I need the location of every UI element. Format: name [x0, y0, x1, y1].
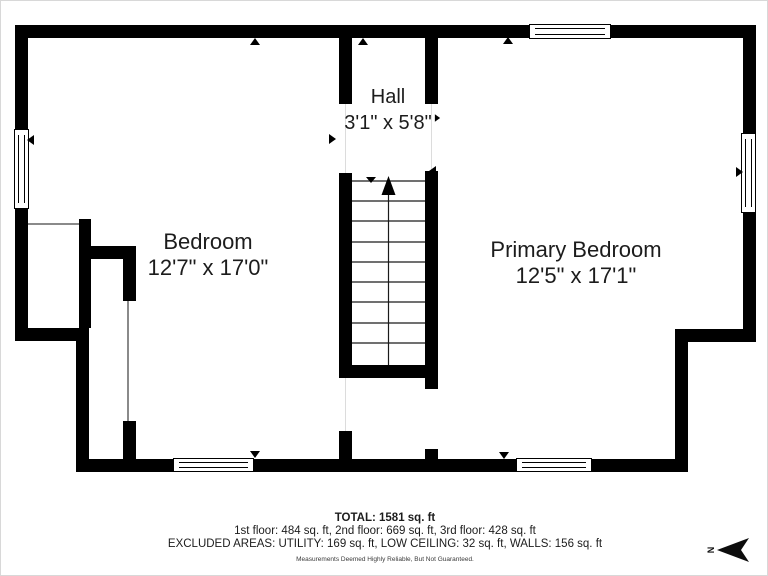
- marker-arrow-left-icon: [429, 166, 436, 176]
- closet-b-door: [127, 301, 129, 421]
- disclaimer-text: Measurements Deemed Highly Reliable, But…: [1, 556, 768, 563]
- marker-arrow-left-icon: [27, 135, 34, 145]
- marker-arrow-down-icon: [250, 451, 260, 458]
- total-area-text: TOTAL: 1581 sq. ft: [1, 512, 768, 524]
- marker-arrow-down-icon: [499, 452, 509, 459]
- wall-closet-b-top: [89, 246, 136, 259]
- compass: N: [707, 537, 750, 563]
- excluded-areas-text: EXCLUDED AREAS: UTILITY: 169 sq. ft, LOW…: [1, 538, 768, 550]
- window-pane: [745, 139, 752, 207]
- compass-north-arrow-icon: [716, 537, 750, 563]
- wall-stairwell-right: [425, 171, 438, 389]
- marker-arrow-up-icon: [250, 38, 260, 45]
- room-label-primary-bedroom: Primary Bedroom 12'5" x 17'1": [476, 237, 676, 289]
- room-name: Hall: [318, 84, 458, 110]
- stairs-level-marker: [366, 177, 376, 183]
- window-pane: [179, 462, 248, 468]
- window-pane: [535, 28, 605, 35]
- window-top-wall: [529, 24, 611, 39]
- room-name: Primary Bedroom: [476, 237, 676, 263]
- wall-exterior-top: [15, 25, 756, 38]
- floor-plan: Hall 3'1" x 5'8" Bedroom 12'7" x 17'0" P…: [0, 0, 768, 576]
- closet-a-door: [28, 223, 79, 225]
- wall-closet-a-right: [79, 219, 91, 328]
- marker-arrow-right-icon: [736, 167, 743, 177]
- room-label-hall: Hall 3'1" x 5'8": [318, 84, 458, 136]
- room-label-bedroom: Bedroom 12'7" x 17'0": [138, 229, 278, 281]
- window-right-wall: [741, 133, 756, 213]
- stairs-up-arrow: [382, 176, 396, 195]
- room-dimensions: 12'7" x 17'0": [138, 255, 278, 281]
- floor-areas-text: 1st floor: 484 sq. ft, 2nd floor: 669 sq…: [1, 525, 768, 537]
- window-pane: [18, 135, 25, 203]
- room-name: Bedroom: [138, 229, 278, 255]
- wall-closet-b-right-upper: [123, 259, 136, 301]
- compass-north-label: N: [705, 547, 715, 554]
- window-bottom-right: [516, 458, 592, 472]
- window-pane: [522, 462, 586, 468]
- wall-exterior-bottom: [76, 459, 688, 472]
- wall-exterior-left-lower: [76, 328, 89, 472]
- wall-stairwell-bottom: [339, 365, 438, 378]
- staircase: [352, 173, 425, 365]
- wall-exterior-right-lower: [675, 329, 688, 472]
- marker-arrow-up-icon: [358, 38, 368, 45]
- wall-stairwell-left: [339, 173, 352, 378]
- wall-understair-right-stub: [425, 449, 438, 459]
- wall-understair-left-stub: [339, 431, 352, 459]
- understair-opening-line: [345, 378, 346, 431]
- room-dimensions: 12'5" x 17'1": [476, 263, 676, 289]
- window-bottom-left: [173, 458, 254, 472]
- room-dimensions: 3'1" x 5'8": [318, 110, 458, 136]
- marker-arrow-up-icon: [503, 37, 513, 44]
- wall-closet-b-right-lower: [123, 421, 136, 459]
